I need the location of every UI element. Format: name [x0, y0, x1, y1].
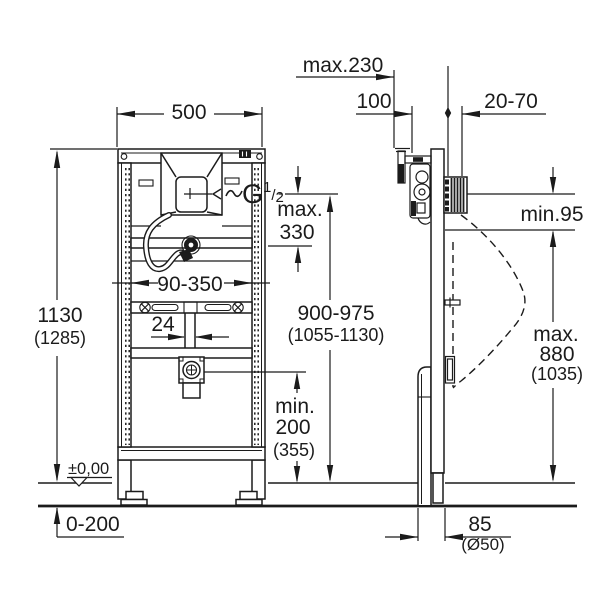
telescopic-foot	[433, 473, 443, 503]
dim-bracket-offset: 100	[356, 90, 391, 113]
dim-wall-clearance: 20-70	[484, 90, 538, 113]
left-foot	[126, 492, 143, 500]
dim-drain-height-alt: (355)	[273, 440, 315, 460]
flush-pipe-connector	[444, 177, 467, 213]
dim-frame-width: 500	[171, 101, 206, 124]
dim-supply-drop-prefix: max.	[277, 198, 323, 221]
urinal-lower-bracket	[446, 357, 455, 384]
dim-bracket-depth: max.230	[303, 54, 384, 77]
floor-level-symbol	[67, 478, 112, 487]
drain-socket	[183, 383, 200, 398]
urinal-outline-dashed	[453, 215, 525, 388]
dim-inlet-height: 900-975	[297, 302, 374, 325]
side-slot-left	[139, 180, 153, 186]
dim-urinal-height-alt: (1035)	[531, 364, 583, 384]
bottom-bar	[118, 447, 265, 460]
tilde-break-icon	[226, 191, 242, 197]
side-view	[395, 149, 525, 506]
center-diamond-icon	[445, 107, 451, 119]
installation-frame-technical-drawing: 500 1130 (1285) G1/2 max. 330 90-350 24 …	[0, 0, 600, 605]
mounting-rail	[131, 302, 252, 348]
dim-inlet-height-alt: (1055-1130)	[288, 325, 385, 345]
dim-bracket-offset-lines	[356, 106, 412, 153]
side-slot-right	[225, 178, 239, 184]
flush-valve	[410, 164, 430, 224]
dim-frame-height: 1130	[37, 304, 82, 327]
drawing-canvas: 500 1130 (1285) G1/2 max. 330 90-350 24 …	[0, 0, 600, 600]
dim-rim-clearance: min.95	[520, 203, 583, 226]
side-leg	[418, 367, 431, 505]
dim-rail-adjust: 90-350	[157, 273, 222, 296]
drain-pipe-diameter-label: (Ø50)	[461, 535, 504, 554]
top-connector-block	[239, 150, 251, 158]
dim-drain-height-prefix: min.	[275, 395, 315, 418]
dim-flush-pipe-width: 24	[151, 313, 175, 336]
dim-wall-clearance-lines	[462, 106, 546, 176]
side-rail	[431, 149, 444, 473]
drain-fitting	[179, 357, 204, 398]
centerline-with-diamond	[445, 66, 451, 176]
right-foot	[240, 492, 257, 500]
dim-floor-buildup: 0-200	[66, 513, 120, 536]
dim-drain-height-value: 200	[275, 416, 310, 439]
dim-frame-height-alt: (1285)	[34, 328, 86, 348]
dim-drain-offset: 85	[468, 513, 491, 536]
dim-urinal-height-value: 880	[539, 343, 574, 366]
dim-supply-drop-value: 330	[279, 221, 314, 244]
wall-bracket	[395, 149, 431, 184]
floor-level-label: ±0,00	[68, 460, 109, 478]
